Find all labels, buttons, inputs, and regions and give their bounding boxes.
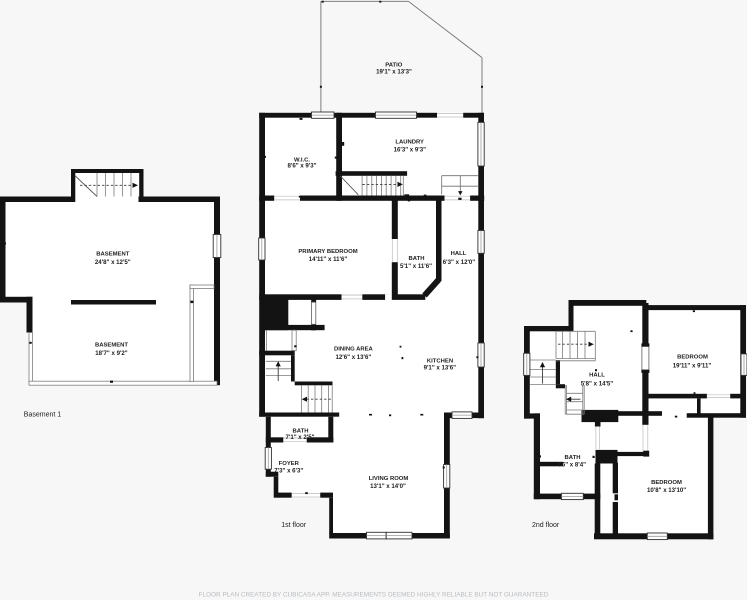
- svg-text:19'1" x 13'3": 19'1" x 13'3": [376, 69, 412, 76]
- svg-text:BEDROOM: BEDROOM: [677, 355, 708, 361]
- svg-text:FLOOR PLAN CREATED BY CUBICASA: FLOOR PLAN CREATED BY CUBICASA APP. MEAS…: [199, 591, 549, 598]
- svg-text:BASEMENT: BASEMENT: [95, 342, 128, 348]
- svg-text:BATH: BATH: [565, 455, 581, 461]
- svg-text:14'11" x 11'6": 14'11" x 11'6": [309, 256, 348, 263]
- svg-text:4'6" x 8'4": 4'6" x 8'4": [557, 461, 586, 468]
- svg-text:PATIO: PATIO: [385, 62, 403, 68]
- svg-text:10'8" x 13'10": 10'8" x 13'10": [647, 487, 686, 494]
- svg-text:6'3" x 12'0": 6'3" x 12'0": [443, 259, 476, 266]
- svg-text:18'7" x 9'2": 18'7" x 9'2": [95, 350, 128, 357]
- svg-text:19'11" x 9'11": 19'11" x 9'11": [673, 362, 712, 369]
- svg-text:1st floor: 1st floor: [281, 522, 307, 529]
- svg-text:9'1" x 13'6": 9'1" x 13'6": [424, 364, 457, 371]
- svg-text:LAUNDRY: LAUNDRY: [395, 140, 424, 146]
- svg-text:8'6" x 9'3": 8'6" x 9'3": [287, 163, 316, 170]
- svg-text:FOYER: FOYER: [279, 461, 300, 467]
- svg-text:5'8" x 14'5": 5'8" x 14'5": [581, 381, 614, 388]
- svg-text:7'1" x 2'5": 7'1" x 2'5": [285, 434, 314, 441]
- svg-text:12'6" x 13'6": 12'6" x 13'6": [336, 354, 372, 361]
- svg-text:5'1" x 11'6": 5'1" x 11'6": [400, 263, 432, 270]
- svg-text:7'3" x 6'3": 7'3" x 6'3": [274, 467, 303, 474]
- svg-text:BEDROOM: BEDROOM: [651, 480, 682, 486]
- svg-text:BASEMENT: BASEMENT: [96, 251, 129, 257]
- svg-text:16'3" x 9'3": 16'3" x 9'3": [394, 147, 427, 154]
- svg-text:DINING AREA: DINING AREA: [334, 346, 373, 352]
- svg-text:PRIMARY BEDROOM: PRIMARY BEDROOM: [298, 249, 357, 255]
- svg-text:LIVING ROOM: LIVING ROOM: [369, 476, 409, 482]
- svg-text:24'8" x 12'5": 24'8" x 12'5": [95, 259, 131, 266]
- svg-text:BATH: BATH: [409, 256, 425, 262]
- svg-text:Basement 1: Basement 1: [24, 411, 61, 418]
- svg-text:13'1" x 14'0": 13'1" x 14'0": [370, 483, 406, 490]
- svg-text:HALL: HALL: [589, 373, 605, 379]
- svg-text:2nd floor: 2nd floor: [532, 522, 560, 529]
- svg-text:HALL: HALL: [451, 251, 467, 257]
